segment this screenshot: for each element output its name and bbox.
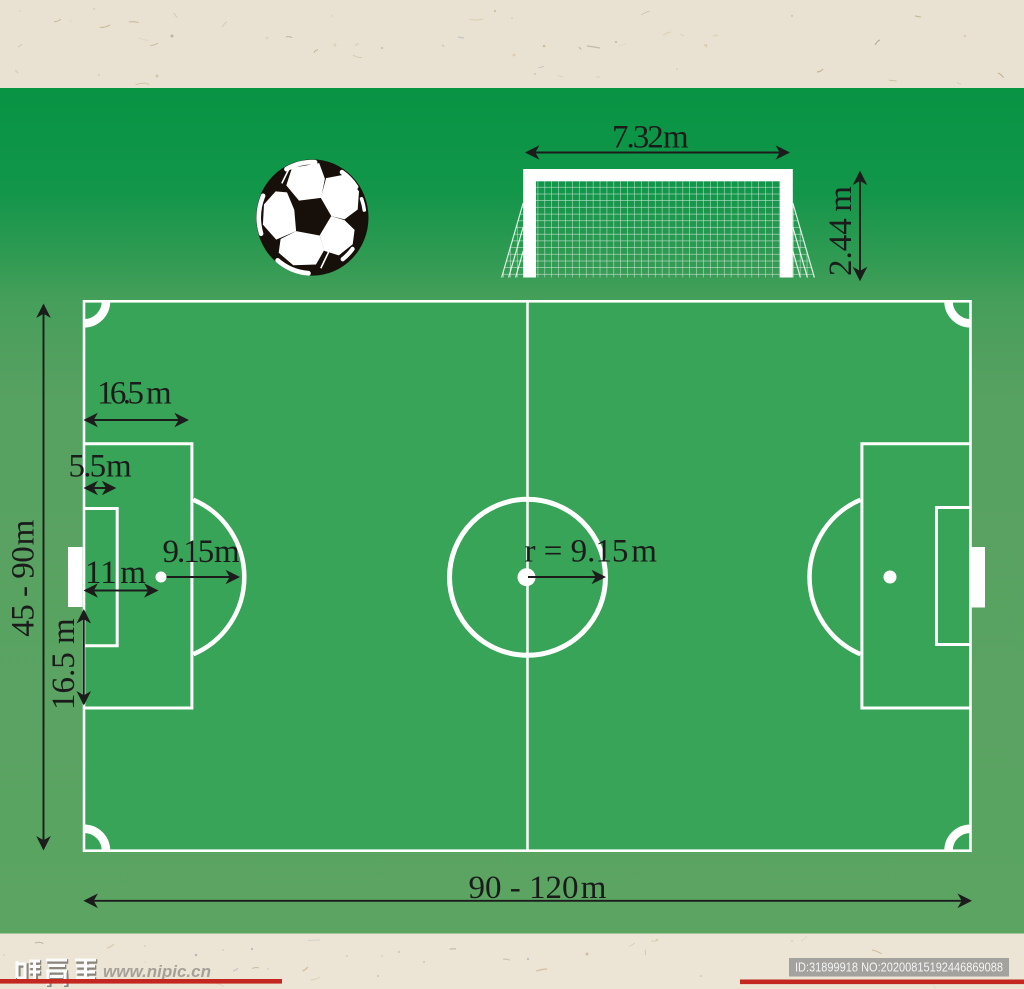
svg-text:m: m — [120, 555, 146, 591]
svg-text:11: 11 — [85, 555, 117, 591]
svg-text:m: m — [46, 618, 82, 644]
svg-text:m: m — [663, 120, 689, 156]
svg-text:m: m — [146, 376, 172, 412]
svg-text:m: m — [823, 186, 859, 212]
svg-text:m: m — [106, 448, 132, 484]
svg-text:9.15: 9.15 — [163, 534, 214, 570]
svg-text:16.5: 16.5 — [46, 652, 82, 710]
svg-text:www.nipic.cn: www.nipic.cn — [103, 962, 211, 981]
svg-text:r = 9.15: r = 9.15 — [525, 534, 629, 570]
svg-text:m: m — [214, 534, 240, 570]
svg-text:16.5: 16.5 — [97, 376, 143, 412]
svg-text:m: m — [5, 519, 41, 545]
svg-text:7.32: 7.32 — [612, 120, 662, 156]
svg-text:5.5: 5.5 — [69, 448, 106, 484]
svg-text:45 - 90: 45 - 90 — [5, 547, 41, 637]
svg-text:ID:31899918 NO:202008151924468: ID:31899918 NO:20200815192446869088 — [795, 961, 1003, 975]
svg-text:m: m — [631, 534, 657, 570]
